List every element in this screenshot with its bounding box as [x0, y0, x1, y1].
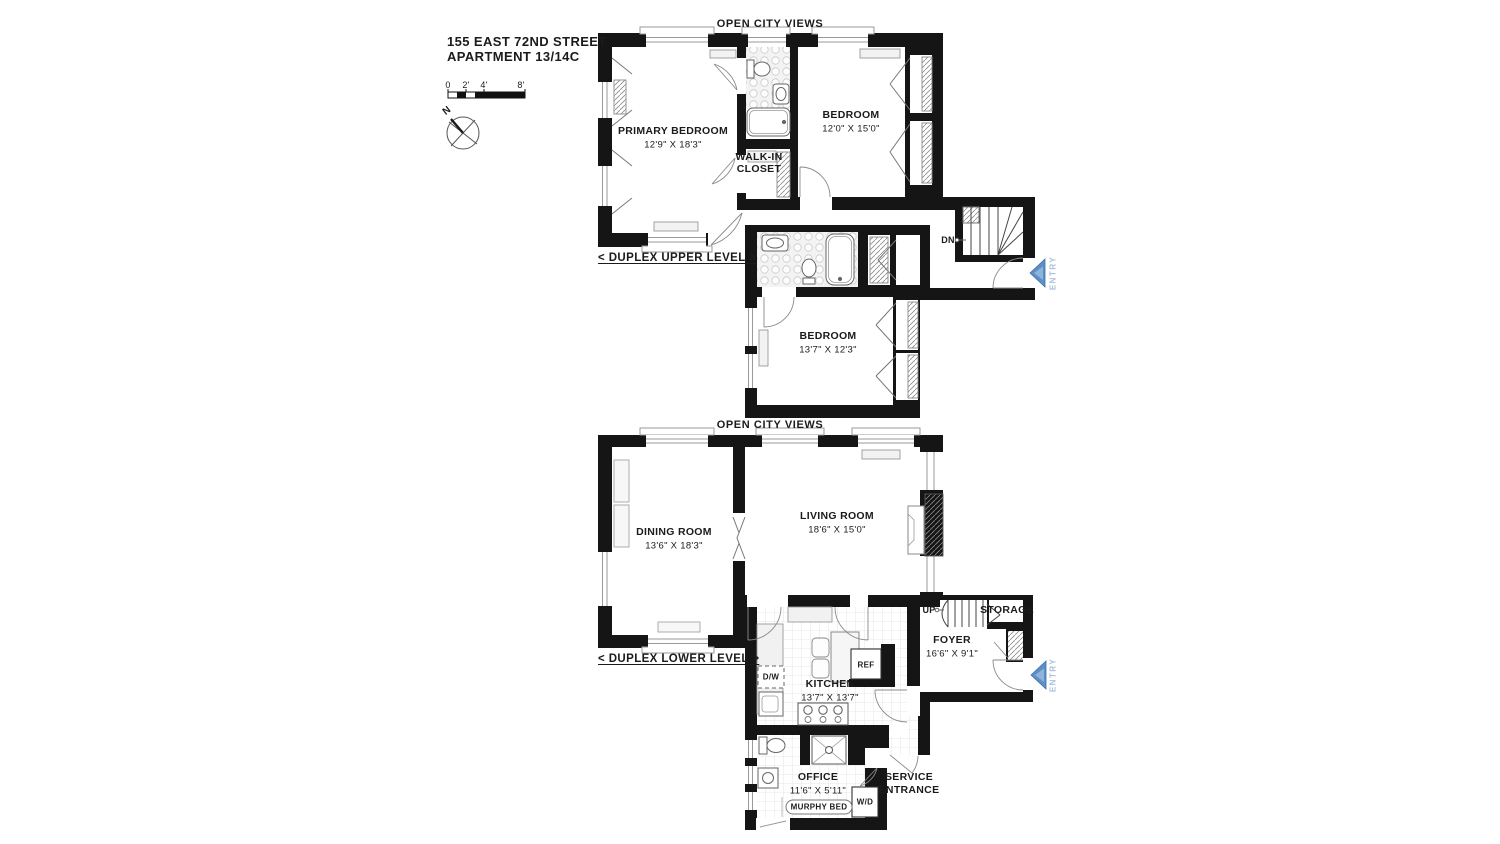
upper-level-plan: [598, 27, 1045, 418]
washer-dryer-label: W/D: [857, 798, 873, 807]
office-name: OFFICE: [798, 771, 838, 783]
kitchen-wall-chunk: [881, 644, 895, 687]
service-entrance-line1: SERVICE: [885, 771, 933, 783]
kitchen-name: KITCHEN: [806, 678, 855, 690]
scale-tick-8: 8': [517, 80, 524, 90]
counter: [788, 607, 832, 622]
kitchen-door-gap-a: [747, 595, 788, 607]
shower-icon: [812, 736, 846, 764]
kitchen-door-gap-b: [850, 595, 868, 607]
kitchen-foyer-door-gap: [907, 686, 920, 716]
lower-banner: OPEN CITY VIEWS: [717, 419, 824, 431]
sink-icon: [762, 235, 788, 251]
chair-icon: [812, 638, 829, 657]
chair-icon: [812, 659, 829, 678]
stairs-up-label: UP: [922, 605, 935, 615]
walk-in-closet-line1: WALK-IN: [735, 151, 782, 163]
compass: [447, 117, 479, 149]
scale-tick-2: 2': [462, 80, 469, 90]
stairs-dn-label: DN: [941, 235, 955, 245]
bedroom3-name: BEDROOM: [800, 330, 857, 342]
toilet-bowl-icon: [754, 62, 770, 76]
lower-entry-label: ENTRY: [1049, 658, 1058, 692]
living-room-dims: 18'6" X 15'0": [808, 525, 866, 536]
toilet-tank-icon: [747, 60, 754, 78]
bedroom2-dims: 12'0" X 15'0": [822, 124, 880, 135]
radiator-icon: [862, 450, 900, 459]
dining-room-name: DINING ROOM: [636, 526, 712, 538]
living-room-name: LIVING ROOM: [800, 510, 874, 522]
lower-level-plan: [598, 428, 1046, 830]
office-corridor-door-gap: [865, 748, 889, 768]
dishwasher-label: D/W: [763, 673, 779, 682]
bedroom3-dims: 13'7" X 12'3": [799, 345, 857, 356]
storage-label: STORAGE: [980, 604, 1034, 616]
sink-icon: [758, 768, 778, 788]
walk-in-closet-line2: CLOSET: [737, 163, 781, 175]
primary-bedroom-name: PRIMARY BEDROOM: [618, 125, 728, 137]
stove-icon: [798, 703, 848, 725]
hall-closet-b: [896, 235, 920, 285]
dining-room-dims: 13'6" X 18'3": [645, 541, 703, 552]
upper-banner: OPEN CITY VIEWS: [717, 18, 824, 30]
radiator-icon: [658, 622, 700, 632]
scale-tick-4: 4': [480, 80, 487, 90]
bedroom2-name: BEDROOM: [823, 109, 880, 121]
upper-entry-label: ENTRY: [1049, 256, 1058, 290]
primary-bedroom-dims: 12'9" X 18'3": [644, 140, 702, 151]
murphy-bed-label: MURPHY BED: [791, 803, 848, 812]
primary-closet-rod: [614, 80, 626, 114]
lower-level-label: < DUPLEX LOWER LEVEL >: [598, 653, 759, 665]
scale-bar: [448, 89, 525, 98]
scale-tick-0: 0: [445, 80, 450, 90]
toilet-bowl-icon: [802, 259, 816, 277]
address-line1: 155 EAST 72ND STREET: [447, 34, 607, 49]
toilet-bowl-icon: [767, 739, 785, 753]
upper-level-label: < DUPLEX UPPER LEVEL >: [598, 252, 756, 264]
office-dims: 11'6" X 5'11": [790, 786, 846, 797]
foyer-name: FOYER: [933, 634, 971, 646]
foyer-closet-rod: [1008, 631, 1023, 660]
service-entrance-line2: ENTRANCE: [879, 784, 940, 796]
bedroom2-floor: [798, 47, 905, 197]
toilet-tank-icon: [803, 278, 815, 284]
bedroom3-door-gap: [762, 287, 796, 297]
foyer-dims: 16'6" X 9'1": [926, 649, 978, 660]
bedroom2-door-gap: [800, 197, 832, 210]
toilet-tank-icon: [759, 737, 767, 754]
refrigerator-label: REF: [858, 661, 875, 670]
lower-entry-arrow-icon: [1031, 661, 1046, 689]
entry-corridor-floor: [955, 262, 1023, 288]
address-line2: APARTMENT 13/14C: [447, 49, 580, 64]
floor-plan-page: 155 EAST 72ND STREET APARTMENT 13/14C 0 …: [0, 0, 1500, 844]
kitchen-dims: 13'7" X 13'7": [801, 693, 859, 704]
kitchen-corridor-door-gap: [891, 723, 908, 737]
